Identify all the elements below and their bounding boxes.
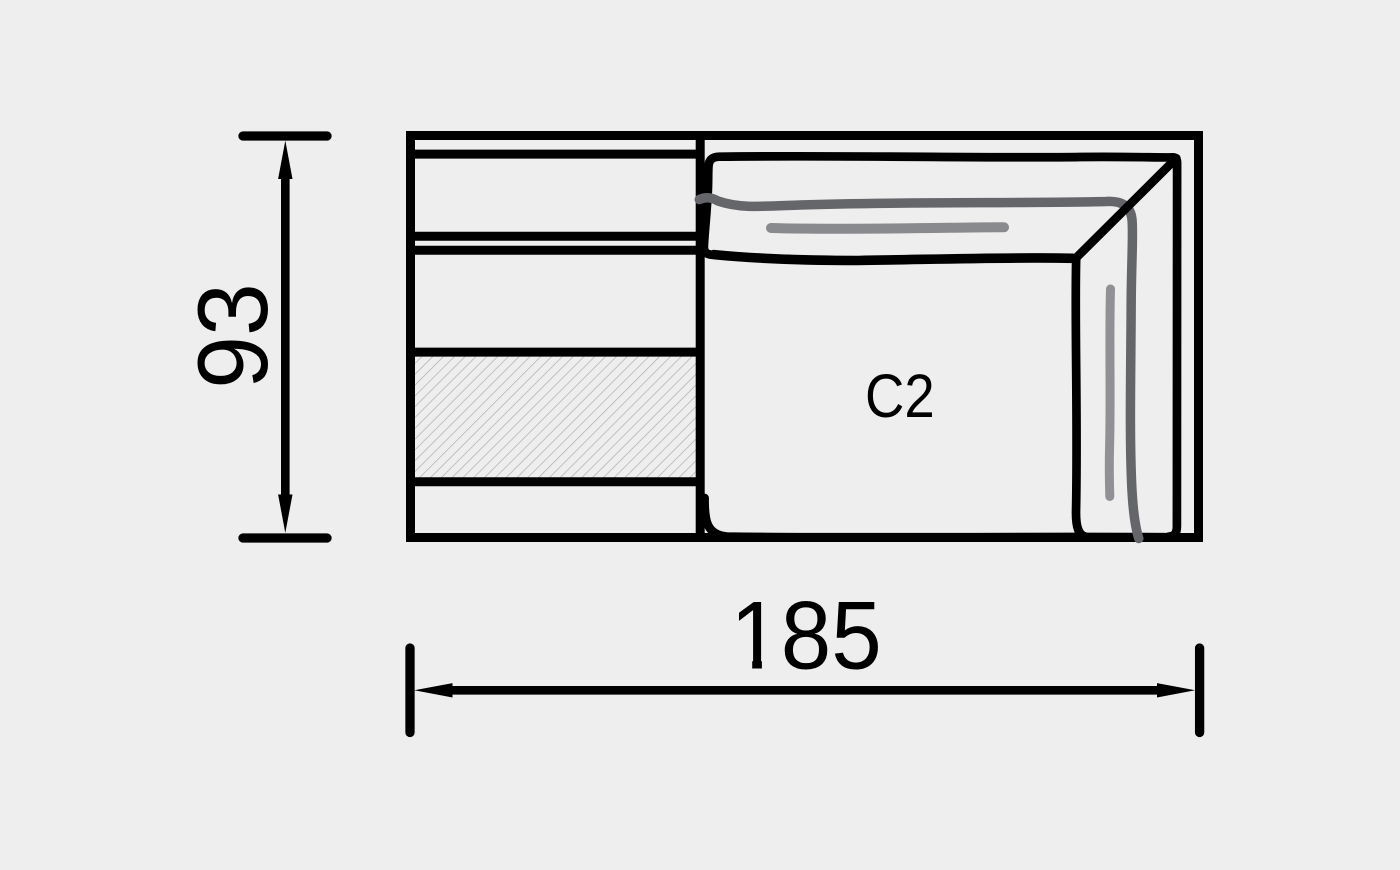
svg-text:C2: C2 [865, 363, 935, 430]
svg-text:185: 185 [730, 581, 882, 689]
svg-text:93: 93 [177, 283, 289, 389]
